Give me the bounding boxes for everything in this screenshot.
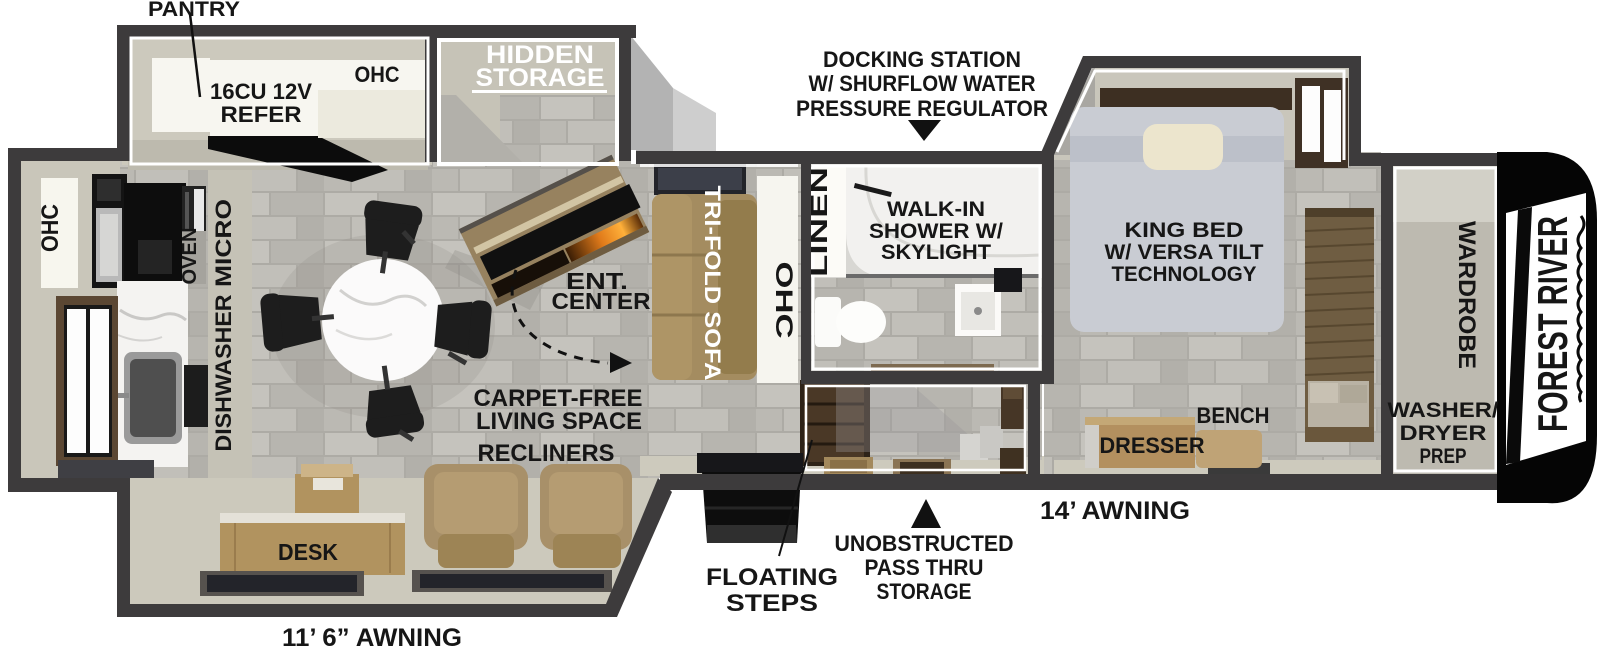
svg-text:16CU 12V: 16CU 12V — [210, 79, 312, 104]
svg-text:DISHWASHER: DISHWASHER — [211, 294, 236, 451]
svg-text:W/ SHURFLOW WATER: W/ SHURFLOW WATER — [809, 71, 1036, 96]
svg-text:11’ 6” AWNING: 11’ 6” AWNING — [282, 624, 462, 651]
svg-text:14’ AWNING: 14’ AWNING — [1040, 497, 1190, 525]
svg-text:TRI-FOLD SOFA: TRI-FOLD SOFA — [700, 186, 725, 381]
svg-text:CENTER: CENTER — [552, 288, 651, 314]
svg-text:BENCH: BENCH — [1197, 403, 1270, 428]
svg-text:OVEN: OVEN — [179, 228, 201, 285]
svg-text:KING BED: KING BED — [1125, 219, 1244, 242]
svg-text:LIVING SPACE: LIVING SPACE — [476, 408, 642, 435]
svg-text:RECLINERS: RECLINERS — [478, 440, 615, 467]
svg-text:DESK: DESK — [278, 539, 338, 565]
svg-text:MICRO: MICRO — [211, 199, 236, 287]
svg-text:WALK-IN: WALK-IN — [887, 198, 985, 221]
svg-text:DRYER: DRYER — [1400, 422, 1487, 445]
svg-text:STEPS: STEPS — [726, 590, 818, 617]
svg-text:PRESSURE REGULATOR: PRESSURE REGULATOR — [796, 96, 1048, 121]
svg-text:PANTRY: PANTRY — [148, 0, 240, 21]
svg-text:W/ VERSA TILT: W/ VERSA TILT — [1105, 241, 1264, 264]
svg-text:LINEN: LINEN — [806, 167, 832, 277]
svg-text:SKYLIGHT: SKYLIGHT — [881, 241, 991, 264]
svg-text:OHC: OHC — [770, 262, 797, 339]
svg-text:SHOWER W/: SHOWER W/ — [869, 220, 1003, 243]
svg-text:WASHER/: WASHER/ — [1388, 399, 1499, 422]
svg-text:STORAGE: STORAGE — [877, 579, 972, 604]
svg-text:REFER: REFER — [221, 102, 302, 127]
svg-text:DOCKING STATION: DOCKING STATION — [823, 47, 1021, 72]
svg-text:UNOBSTRUCTED: UNOBSTRUCTED — [835, 531, 1014, 556]
svg-text:STORAGE: STORAGE — [476, 64, 605, 92]
svg-text:FOREST RIVER: FOREST RIVER — [1529, 216, 1576, 432]
svg-text:PASS THRU: PASS THRU — [865, 555, 984, 580]
svg-text:WARDROBE: WARDROBE — [1453, 221, 1480, 369]
svg-text:DRESSER: DRESSER — [1100, 433, 1205, 458]
svg-text:PREP: PREP — [1420, 445, 1467, 468]
svg-text:OHC: OHC — [37, 204, 64, 252]
svg-text:OHC: OHC — [355, 62, 400, 87]
svg-text:TECHNOLOGY: TECHNOLOGY — [1112, 263, 1257, 286]
svg-text:FLOATING: FLOATING — [706, 564, 838, 591]
